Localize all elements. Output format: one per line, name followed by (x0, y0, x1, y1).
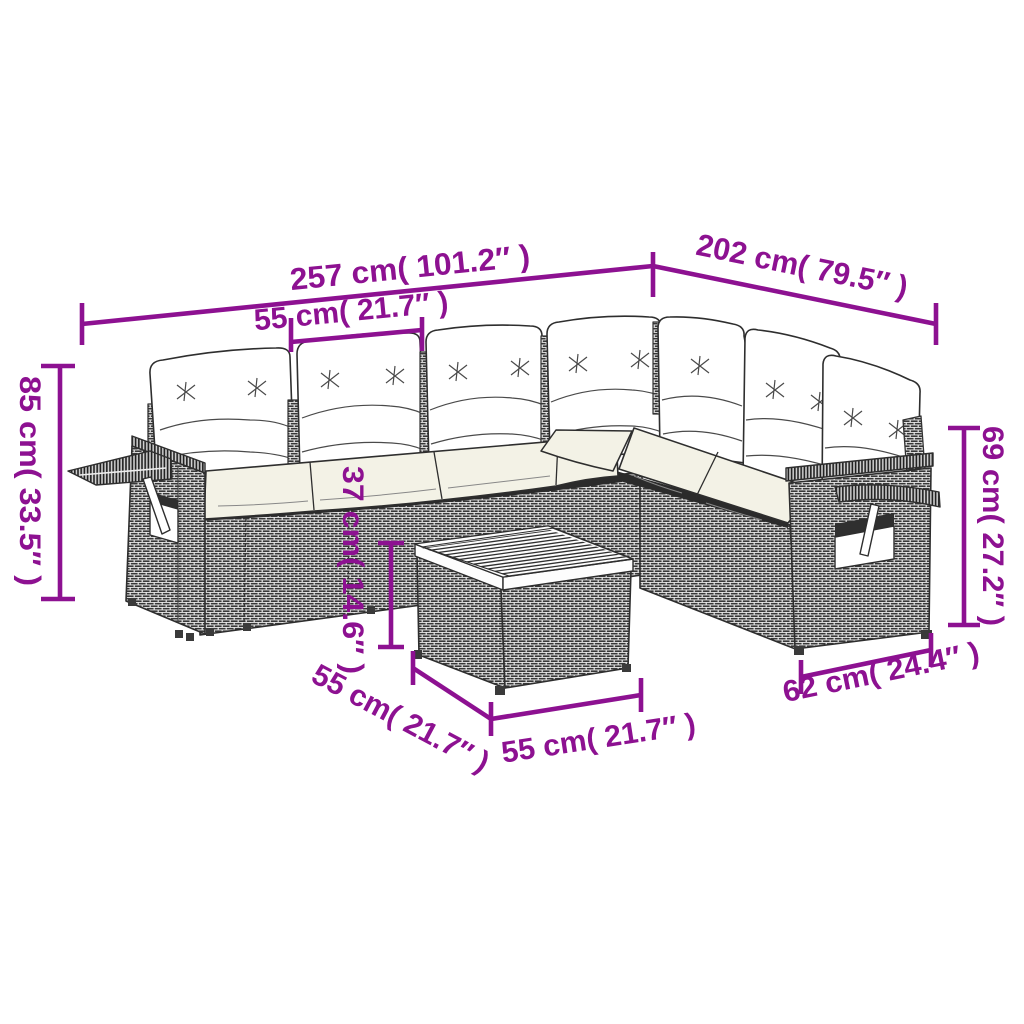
svg-text:37 cm( 14.6″ ): 37 cm( 14.6″ ) (336, 466, 369, 674)
svg-text:69 cm( 27.2″ ): 69 cm( 27.2″ ) (976, 426, 1009, 626)
svg-text:85 cm( 33.5″ ): 85 cm( 33.5″ ) (13, 376, 46, 586)
